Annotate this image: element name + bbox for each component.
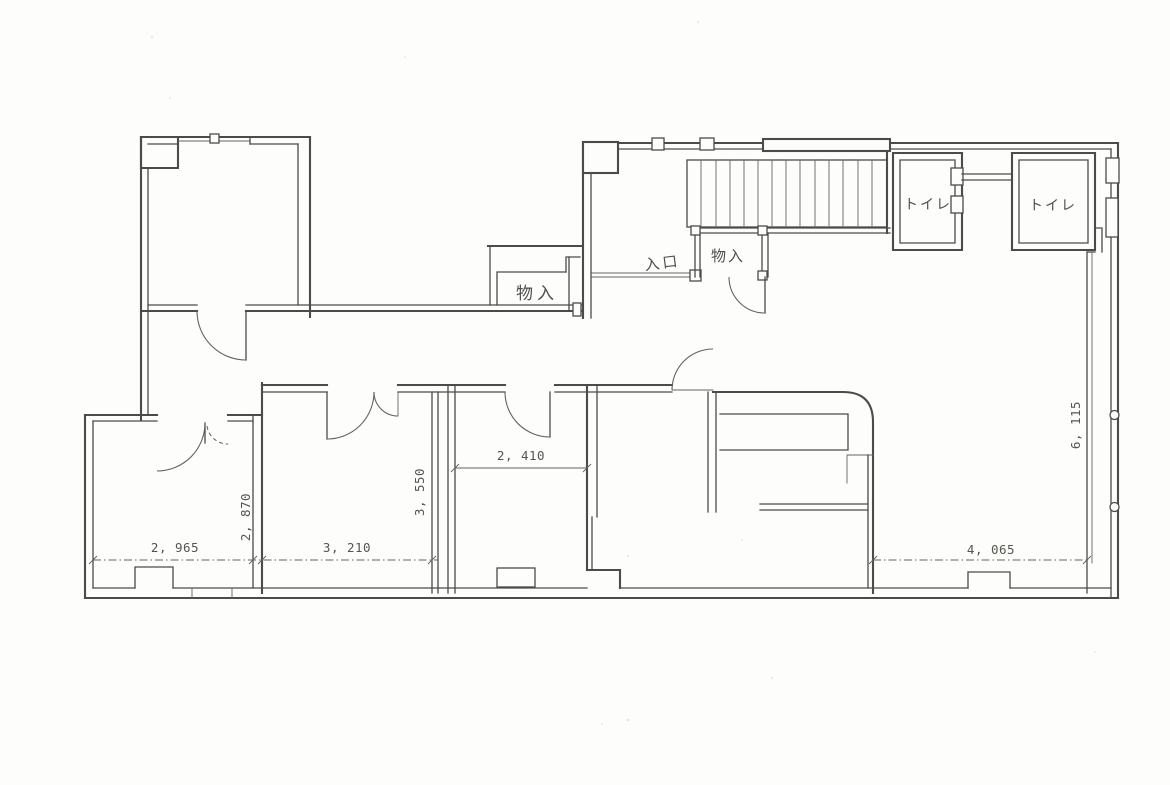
door-swings: [157, 277, 765, 471]
room-label-toilet-upper: トイレ: [904, 197, 952, 213]
door-small-room: [505, 392, 550, 437]
staircase: [652, 138, 893, 233]
bottom-wall-detail: [93, 567, 1111, 598]
door-hall-to-right-room: [672, 349, 713, 390]
room-label-toilet-right: トイレ: [1029, 198, 1077, 214]
door-middle-room: [327, 392, 398, 439]
dimension-labels: 2, 965 3, 210 2, 410 4, 065 2, 870 3, 55…: [151, 401, 1083, 557]
service-counter: [708, 392, 873, 593]
dim-label-room-left-width: 2, 965: [151, 540, 199, 555]
entrance-threshold: [583, 142, 701, 281]
entrance-label: 入口: [643, 252, 681, 274]
right-room-inner-wall: [1087, 252, 1119, 593]
toilet-connector-wall: [962, 174, 1012, 180]
dim-label-room-left-height: 2, 870: [238, 493, 253, 541]
scanned-floor-plan-sheet: 2, 965 3, 210 2, 410 4, 065 2, 870 3, 55…: [0, 0, 1170, 785]
corridor-wall: [141, 305, 583, 311]
dim-label-room-small-width: 2, 410: [497, 448, 545, 463]
dim-label-room-mid-height: 3, 550: [412, 468, 427, 516]
dim-label-room-right-height: 6, 115: [1068, 401, 1083, 449]
door-storage-stairs: [729, 277, 765, 313]
floor-plan-drawing: 2, 965 3, 210 2, 410 4, 065 2, 870 3, 55…: [0, 0, 1170, 785]
dim-label-room-right-width: 4, 065: [967, 542, 1015, 557]
dim-label-room-mid-width: 3, 210: [323, 540, 371, 555]
room-label-storage-hall: 物入: [516, 284, 558, 304]
scan-speckles: [151, 21, 1096, 725]
room-labels: トイレ トイレ 物入 物入 入口: [516, 197, 1077, 304]
door-bottom-left-room: [157, 423, 228, 471]
room-label-storage-stairs: 物入: [711, 247, 745, 265]
lower-partition-walls: [85, 383, 672, 593]
window-top-left: [141, 134, 250, 168]
door-top-left-room: [197, 311, 246, 360]
